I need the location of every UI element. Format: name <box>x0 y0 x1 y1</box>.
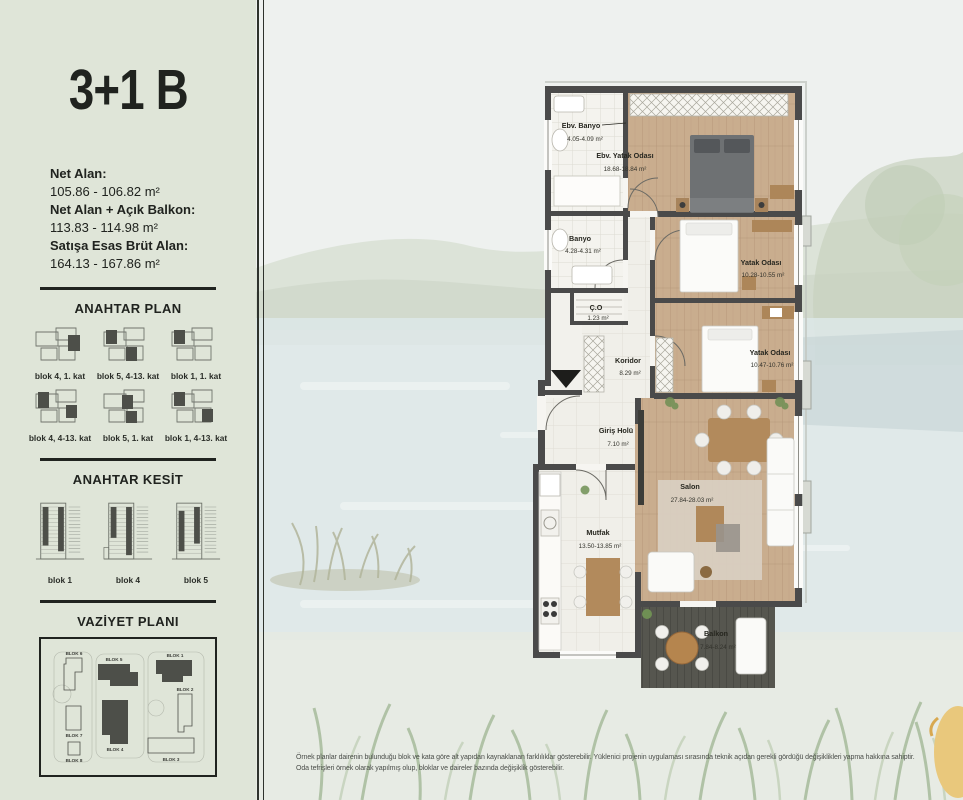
key-plan-item: blok 4, 4-13. kat <box>28 385 92 443</box>
room-label: Mutfak <box>586 528 609 537</box>
section-divider <box>40 287 216 290</box>
site-block-label: BLOK 6 <box>66 651 83 656</box>
room-area: 8.29 m² <box>619 370 640 377</box>
disclaimer-line-2: Oda tefrişleri örnek olarak yapılmış olu… <box>296 763 915 774</box>
room-label: Banyo <box>569 234 592 243</box>
key-section-item: blok 1 <box>34 497 86 585</box>
room-area: 10.47-10.76 m² <box>751 362 794 369</box>
net-alan-label: Net Alan: <box>50 165 256 183</box>
site-block-label: BLOK 8 <box>66 758 83 763</box>
net-alan-value: 105.86 - 106.82 m² <box>50 183 256 201</box>
room-label: Salon <box>680 482 700 491</box>
room-area: 13.50-13.85 m² <box>579 543 622 550</box>
room-label: Giriş Holü <box>599 426 633 435</box>
sidebar: 3+1 B Net Alan: 105.86 - 106.82 m² Net A… <box>0 0 256 800</box>
section-divider <box>40 600 216 603</box>
anahtar-kesit-heading: ANAHTAR KESİT <box>0 472 256 487</box>
site-block-label: BLOK 2 <box>177 687 194 692</box>
room-area: 4.05-4.09 m² <box>567 136 603 143</box>
key-plan-item: blok 5, 1. kat <box>96 385 160 443</box>
anahtar-kesit-row: blok 1 blok 4 <box>0 497 256 585</box>
section-divider <box>40 458 216 461</box>
room-label: Balkon <box>704 629 728 638</box>
room-label: Ebv. Banyo <box>562 121 601 130</box>
brut-alan-label: Satışa Esas Brüt Alan: <box>50 237 256 255</box>
vaziyet-plani-heading: VAZİYET PLANI <box>0 614 256 629</box>
brut-alan-value: 164.13 - 167.86 m² <box>50 255 256 273</box>
room-area: 7.84-8.24 m² <box>700 644 736 651</box>
net-balkon-value: 113.83 - 114.98 m² <box>50 219 256 237</box>
key-section-item: blok 5 <box>170 497 222 585</box>
disclaimer-line-1: Örnek planlar dairenin bulunduğu blok ve… <box>296 752 915 763</box>
room-label: Yatak Odası <box>741 258 782 267</box>
site-block-label: BLOK 5 <box>106 657 123 662</box>
key-plan-item: blok 4, 1. kat <box>28 323 92 381</box>
anahtar-plan-heading: ANAHTAR PLAN <box>0 301 256 316</box>
key-plan-item: blok 5, 4-13. kat <box>96 323 160 381</box>
key-plan-item: blok 1, 1. kat <box>164 323 228 381</box>
net-balkon-label: Net Alan + Açık Balkon: <box>50 201 256 219</box>
room-area: 1.23 m² <box>587 315 608 322</box>
site-plan-box: BLOK 6 BLOK 5 BLOK 1 BLOK 7 BLOK 2 BLOK … <box>39 637 217 777</box>
sidebar-divider <box>257 0 264 800</box>
floor-plan: Ebv. Banyo 4.05-4.09 m² Ebv. Yatak Odası… <box>530 80 820 695</box>
room-area: 18.68-18.84 m² <box>604 166 647 173</box>
site-block-label: BLOK 7 <box>66 733 83 738</box>
site-block-label: BLOK 4 <box>107 747 124 752</box>
site-plan: BLOK 6 BLOK 5 BLOK 1 BLOK 7 BLOK 2 BLOK … <box>44 642 212 772</box>
room-label: Ç.O <box>590 303 603 312</box>
anahtar-plan-grid: blok 4, 1. kat blok 5, 4-13. kat blok 1,… <box>0 323 256 443</box>
disclaimer: Örnek planlar dairenin bulunduğu blok ve… <box>296 752 915 774</box>
room-label: Ebv. Yatak Odası <box>596 151 653 160</box>
room-label: Koridor <box>615 356 641 365</box>
area-stats: Net Alan: 105.86 - 106.82 m² Net Alan + … <box>50 165 256 272</box>
room-area: 10.28-10.55 m² <box>742 272 785 279</box>
room-area: 4.28-4.31 m² <box>565 248 601 255</box>
site-block-label: BLOK 1 <box>167 653 184 658</box>
room-label: Yatak Odası <box>750 348 791 357</box>
brochure-page: 3+1 B Net Alan: 105.86 - 106.82 m² Net A… <box>0 0 963 800</box>
key-section-item: blok 4 <box>102 497 154 585</box>
room-area: 7.10 m² <box>607 441 628 448</box>
site-block-label: BLOK 3 <box>163 757 180 762</box>
key-plan-item: blok 1, 4-13. kat <box>164 385 228 443</box>
unit-type-title: 3+1 B <box>0 62 256 119</box>
room-area: 27.84-28.03 m² <box>671 497 714 504</box>
